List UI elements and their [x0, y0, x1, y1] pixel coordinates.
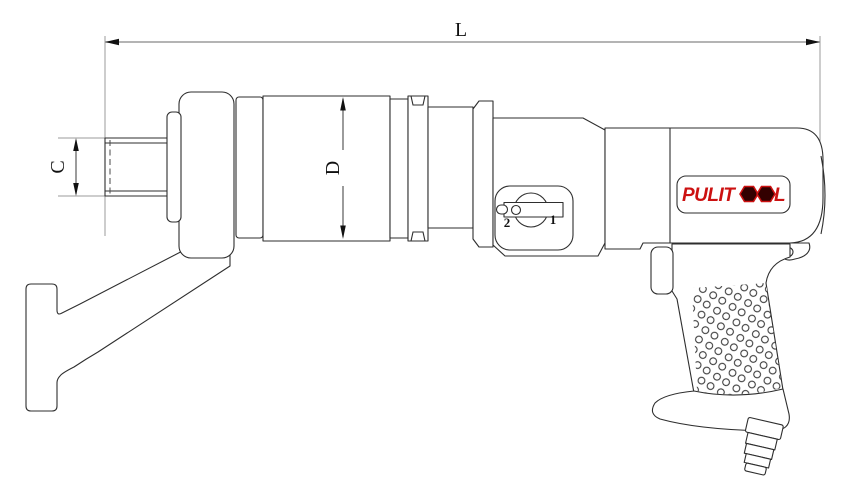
arrowhead-L-left [105, 39, 119, 45]
dimension-L: L [105, 19, 820, 45]
dimension-C: C [47, 138, 79, 196]
dimension-label-D: D [322, 161, 344, 175]
gearbox-neck [236, 97, 263, 238]
arrowhead-C-bottom [73, 183, 79, 196]
torque-wrench-diagram: 2 1 PULIT L [0, 0, 850, 492]
selector-pin [512, 206, 521, 215]
square-drive [105, 138, 170, 196]
brand-hex-o-left [740, 187, 758, 202]
selector-dial: 2 1 [495, 186, 573, 250]
arrowhead-C-top [73, 138, 79, 151]
brand-plate: PULIT L [677, 176, 790, 213]
torque-wrench-body: 2 1 PULIT L [26, 92, 825, 477]
brand-text-prefix: PULIT [682, 185, 736, 206]
trigger [651, 247, 673, 294]
reaction-arm-hub [179, 92, 234, 258]
dimension-label-L: L [455, 19, 467, 41]
brand-text-suffix: L [774, 185, 785, 206]
ring-band-a [390, 99, 408, 238]
pistol-grip [651, 244, 790, 477]
square-drive-outline [105, 138, 170, 196]
brand-hex-o-right [757, 187, 775, 202]
arrowhead-L-right [806, 39, 820, 45]
ring-band-b [408, 96, 428, 241]
valve-front-plate [473, 101, 493, 247]
spacer-section [428, 107, 473, 228]
grip-dimples [692, 283, 782, 394]
output-flange [167, 112, 181, 222]
selector-label-2: 2 [504, 215, 511, 230]
reaction-arm [26, 244, 230, 411]
technical-drawing-page: 2 1 PULIT L [0, 0, 850, 492]
dimension-label-C: C [47, 160, 69, 173]
selector-detent [497, 205, 508, 214]
selector-label-1: 1 [550, 212, 557, 227]
